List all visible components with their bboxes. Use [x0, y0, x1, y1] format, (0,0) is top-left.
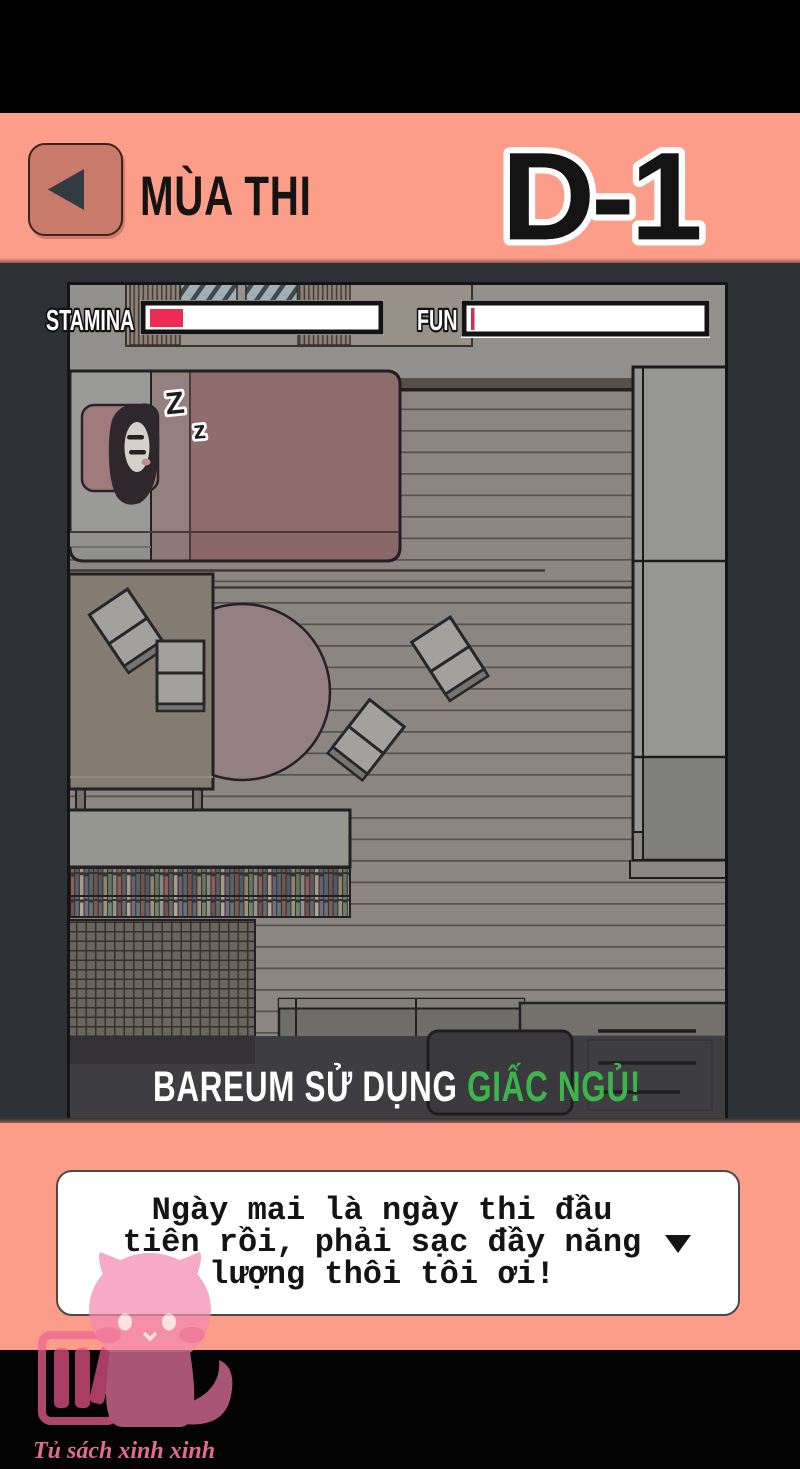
- svg-text:Tủ sách xinh xinh: Tủ sách xinh xinh: [33, 1438, 215, 1464]
- svg-text:FUN: FUN: [417, 305, 458, 337]
- svg-text:STAMINA: STAMINA: [46, 305, 134, 337]
- svg-text:D-1: D-1: [501, 128, 700, 267]
- svg-text:Z: Z: [164, 385, 187, 422]
- svg-text:BAREUM SỬ DỤNG GIẤC NGỦ!: BAREUM SỬ DỤNG GIẤC NGỦ!: [153, 1062, 641, 1110]
- svg-text:z: z: [192, 416, 207, 445]
